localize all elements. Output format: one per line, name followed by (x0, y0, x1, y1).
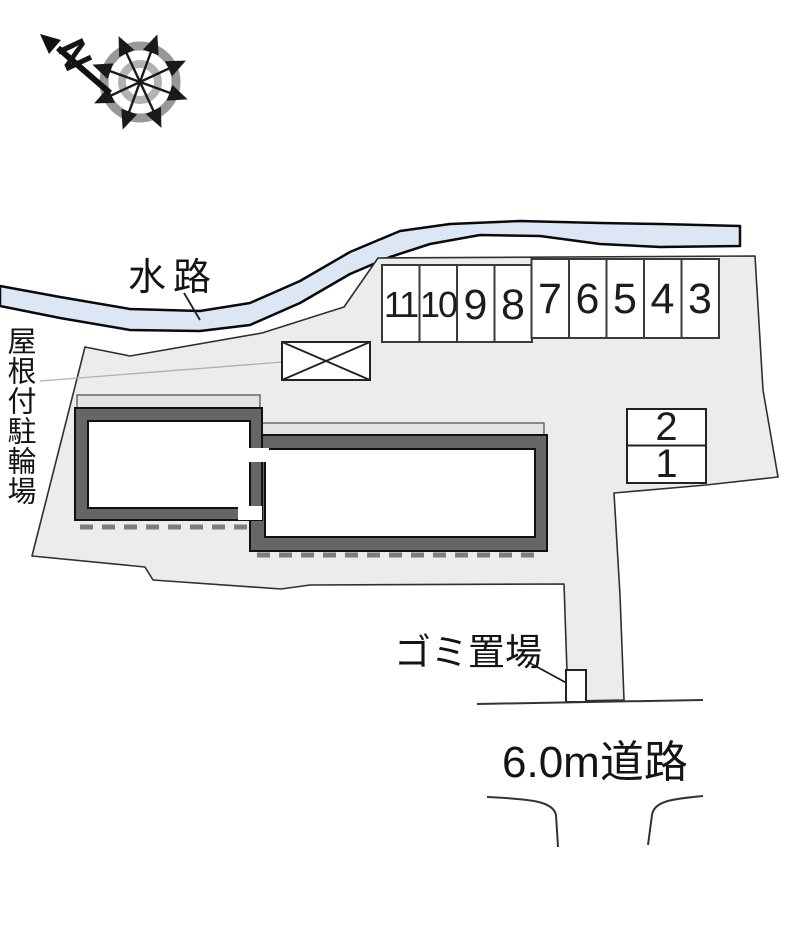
site-plan: N 水路 屋根付駐輪場 ゴミ置場 6.0m道路 11 10 9 8 7 6 5 … (0, 0, 800, 940)
stall-number-8: 8 (495, 281, 532, 329)
stall-number-3: 3 (682, 275, 719, 323)
building-junction-opening-bottom (238, 506, 262, 520)
building-left-eave (77, 395, 260, 409)
bicycle-parking-label: 屋根付駐輪場 (4, 326, 34, 506)
stall-number-1: 1 (627, 446, 706, 483)
road-corner-right (648, 796, 703, 845)
garbage-station-label: ゴミ置場 (394, 622, 542, 676)
stall-number-11: 11 (382, 281, 419, 329)
garbage-station-box (566, 670, 586, 702)
stall-number-9: 9 (457, 281, 494, 329)
stall-number-6: 6 (569, 275, 606, 323)
building-junction-opening-top (247, 448, 269, 462)
bicycle-shelter-box (282, 342, 370, 380)
building-right-interior (265, 449, 535, 537)
stall-number-5: 5 (607, 275, 644, 323)
stall-number-2: 2 (627, 409, 706, 446)
road-corner-left (487, 797, 558, 847)
waterway-label: 水路 (128, 246, 218, 301)
building-left-interior (88, 421, 250, 508)
stall-number-10: 10 (420, 281, 457, 329)
road-width-label: 6.0m道路 (502, 726, 688, 790)
stall-number-4: 4 (644, 275, 681, 323)
stall-number-7: 7 (532, 275, 569, 323)
